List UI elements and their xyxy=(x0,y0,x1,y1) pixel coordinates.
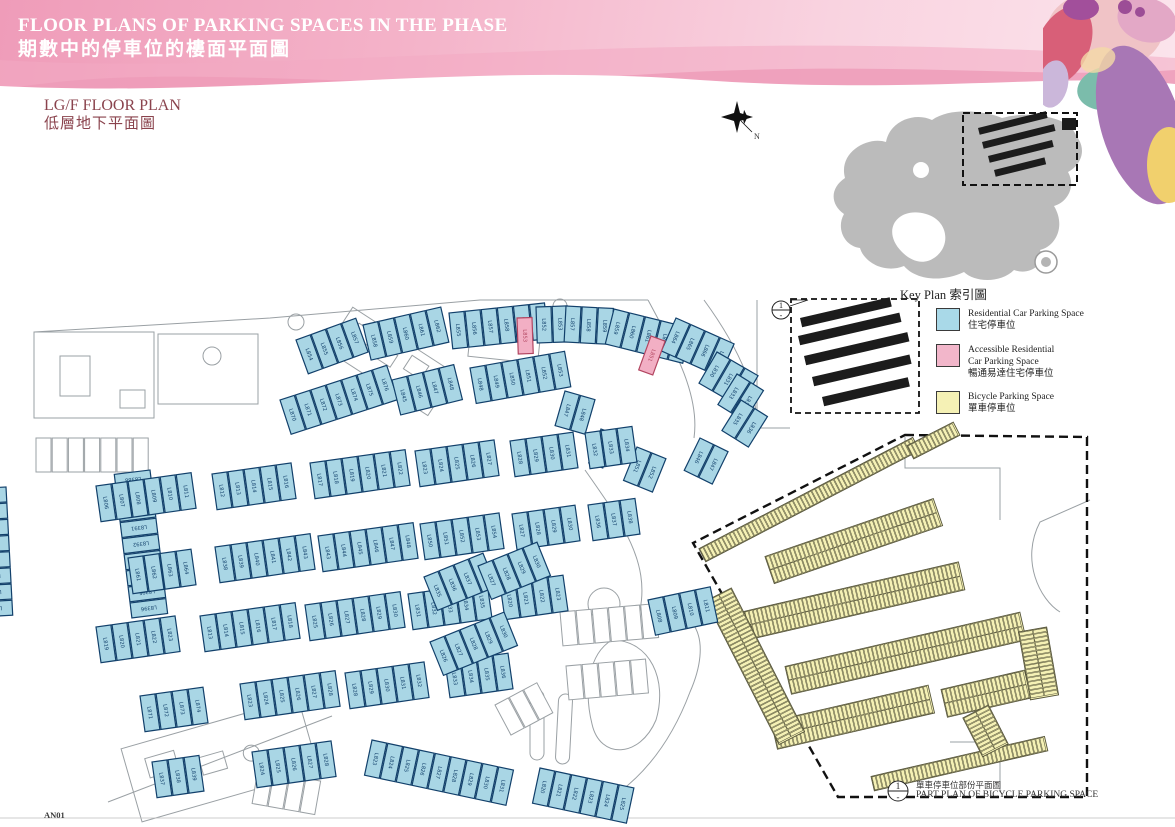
svg-text:-: - xyxy=(780,311,783,320)
legend-item-bicycle: Bicycle Parking Space 單車停車位 xyxy=(936,391,1172,416)
parking-row-residential: L823L824L825L826L827 xyxy=(415,440,499,487)
key-plan-caption-zh: 索引圖 xyxy=(949,288,987,302)
bicycle-swatch-icon xyxy=(936,391,960,414)
svg-text:L852: L852 xyxy=(540,318,546,331)
svg-text:-: - xyxy=(897,792,900,802)
parking-row-residential: L852L853 xyxy=(536,306,568,343)
legend-label-zh: 單車停車位 xyxy=(968,404,1054,416)
key-plan-caption-en: Key Plan xyxy=(900,288,946,302)
accessible-swatch-icon xyxy=(936,344,960,367)
svg-text:1: 1 xyxy=(896,781,901,791)
part-plan-caption: 1 - 單車停車位部份平面圖 PART PLAN OF BICYCLE PARK… xyxy=(886,779,1098,803)
parking-row-residential: L823L824L825L826L827L828L829L830L831 xyxy=(365,740,514,805)
legend-label: Bicycle Parking Space xyxy=(968,392,1054,404)
parking-row-residential: L8630L8631L8632L8633L8634L8635L8636L8637 xyxy=(0,487,13,617)
parking-row-residential: L843L844L845L846L847L848 xyxy=(318,523,418,572)
svg-text:L853: L853 xyxy=(521,329,527,342)
parking-row-residential: L812L813L814L815L816 xyxy=(212,463,296,510)
bicycle-location-marker: 1 - xyxy=(772,297,919,413)
parking-row-residential: L813L814L815L816L817L818 xyxy=(200,603,300,652)
parking-row-residential: L850L851L852L853L854 xyxy=(420,513,504,560)
parking-row-residential: L847L848 xyxy=(555,391,595,434)
legend-item-accessible: Accessible Residential Car Parking Space… xyxy=(936,344,1172,381)
bicycle-parking-band xyxy=(907,422,960,459)
residential-swatch-icon xyxy=(936,308,960,331)
part-plan-caption-zh: 單車停車位部份平面圖 xyxy=(916,780,1098,791)
part-plan-caption-en: PART PLAN OF BICYCLE PARKING SPACE xyxy=(916,790,1098,802)
part-plan-callout-icon: 1 - xyxy=(772,300,808,320)
parking-row-residential: L832L833L834 xyxy=(585,426,637,468)
svg-text:L8637: L8637 xyxy=(0,604,3,611)
part-plan-ref-icon: 1 - xyxy=(886,779,910,803)
parking-row-residential: L808L809L810L811 xyxy=(648,587,718,635)
parking-row-residential: L857L858L859 xyxy=(564,306,613,344)
parking-space-accessible: L853 xyxy=(517,317,533,354)
svg-text:L859: L859 xyxy=(601,319,608,332)
legend: Residential Car Parking Space 住宅停車位 Acce… xyxy=(936,308,1172,427)
parking-row-residential: L837L838L839 xyxy=(152,755,204,797)
parking-row-residential: L870L871L872L873L874L875L876 xyxy=(280,365,398,434)
bicycle-band-location xyxy=(822,377,910,406)
parking-row-residential: L845L846L847L848 xyxy=(392,365,462,415)
legend-label: Residential Car Parking Space xyxy=(968,309,1084,321)
parking-row-residential: L854L855L856L857 xyxy=(296,318,368,374)
svg-text:L857: L857 xyxy=(568,318,575,331)
parking-row-residential: L828L829L830L831 xyxy=(510,432,578,477)
parking-row-residential: L848L849L850L851L852L853 xyxy=(470,351,571,403)
key-plan-caption: Key Plan 索引圖 xyxy=(900,284,987,303)
legend-label: Car Parking Space xyxy=(968,357,1054,369)
parking-row-residential: L858L859L860L861L862 xyxy=(363,307,449,360)
key-plan-map xyxy=(834,111,1082,280)
parking-row-unmarked xyxy=(36,438,148,472)
legend-item-residential: Residential Car Parking Space 住宅停車位 xyxy=(936,308,1172,333)
svg-text:L8636: L8636 xyxy=(0,588,2,595)
parking-row-residential: L836L837L838 xyxy=(588,498,640,540)
parking-row-residential: L871L872L873L874 xyxy=(140,687,208,732)
svg-text:N: N xyxy=(754,132,760,141)
north-arrow-icon: N xyxy=(721,101,760,141)
legend-label-zh: 住宅停車位 xyxy=(968,321,1084,333)
parking-row-residential: L846L847 xyxy=(684,438,728,484)
parking-row-residential: L823L824L825L826L827L828 xyxy=(240,671,340,720)
legend-label: Accessible Residential xyxy=(968,345,1054,357)
parking-row-residential: L825L826L827L828L829L830 xyxy=(305,592,405,641)
parking-row-residential: L820L821L822L823L824L825 xyxy=(533,768,634,823)
parking-row-unmarked xyxy=(566,659,648,700)
legend-label-zh: 暢通易達住宅停車位 xyxy=(968,369,1054,381)
parking-row-residential: L838L839L840L841L842L843 xyxy=(215,534,315,583)
parking-row-residential: L806L807L808L809L810L811 xyxy=(96,473,196,522)
parking-row-unmarked xyxy=(560,604,659,646)
svg-text:1: 1 xyxy=(779,301,783,310)
parking-row-residential: L828L829L830L831L832 xyxy=(345,662,429,709)
svg-text:L858: L858 xyxy=(585,319,592,332)
svg-text:L853: L853 xyxy=(556,318,562,331)
svg-text:L8635: L8635 xyxy=(0,572,1,579)
parking-row-residential: L819L820L821L822L823 xyxy=(96,616,180,663)
parking-row-residential: L827L828L829L830 xyxy=(512,505,580,550)
parking-row-residential: L824L825L826L827L828 xyxy=(252,741,336,788)
parking-row-residential: L817L818L819L820L821L822 xyxy=(310,450,410,499)
sheet-number: AN01 xyxy=(44,810,65,820)
